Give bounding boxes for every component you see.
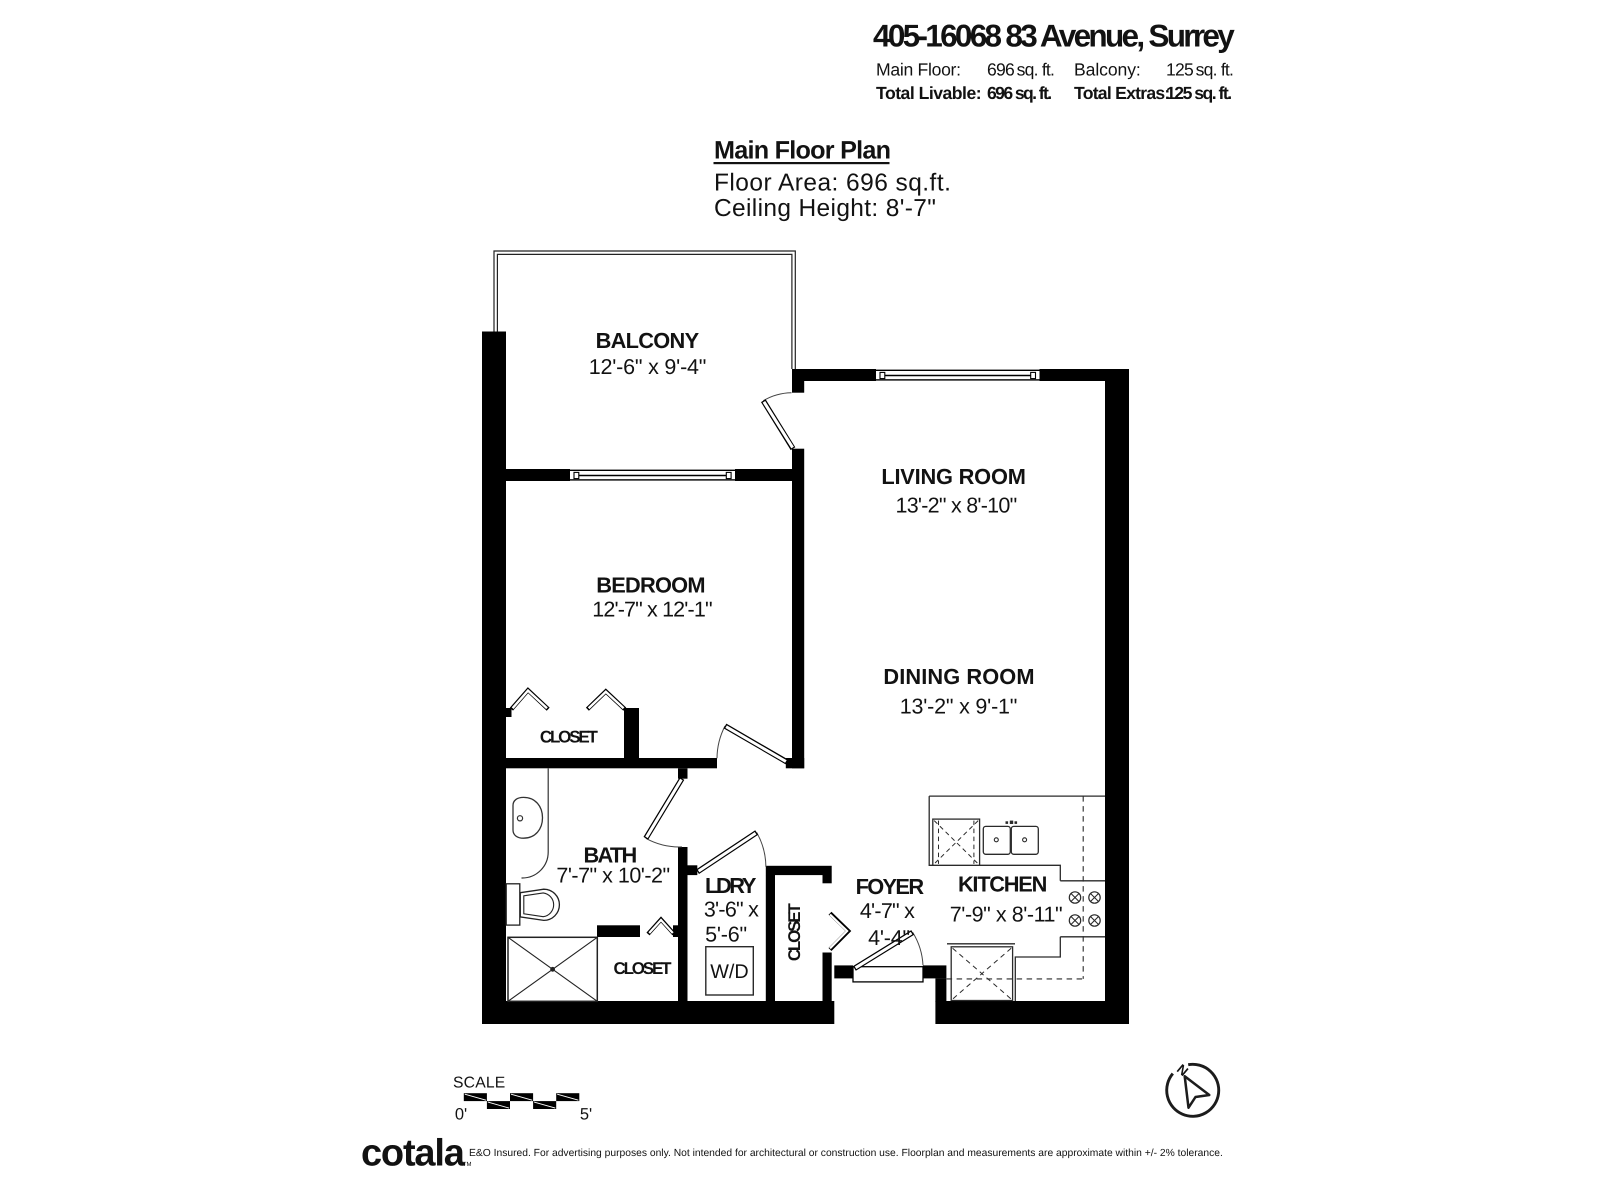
svg-text:BALCONY: BALCONY bbox=[596, 328, 700, 353]
svg-text:CLOSET: CLOSET bbox=[540, 728, 599, 747]
svg-text:5'-6": 5'-6" bbox=[705, 923, 747, 947]
svg-text:SCALE: SCALE bbox=[453, 1074, 505, 1091]
svg-text:CLOSET: CLOSET bbox=[614, 959, 673, 978]
svg-text:0': 0' bbox=[455, 1106, 467, 1124]
svg-text:Main Floor Plan: Main Floor Plan bbox=[714, 137, 890, 165]
svg-text:4'-4": 4'-4" bbox=[868, 926, 910, 950]
svg-text:FOYER: FOYER bbox=[856, 874, 925, 899]
svg-text:Total Extras:: Total Extras: bbox=[1074, 83, 1170, 103]
svg-text:7'-7" x 10'-2": 7'-7" x 10'-2" bbox=[556, 864, 669, 888]
svg-text:Floor Area: 696 sq.ft.: Floor Area: 696 sq.ft. bbox=[714, 170, 951, 197]
svg-text:4'-7" x: 4'-7" x bbox=[860, 899, 915, 923]
svg-text:LDRY: LDRY bbox=[705, 873, 757, 898]
svg-text:13'-2" x 8'-10": 13'-2" x 8'-10" bbox=[896, 494, 1017, 518]
svg-text:13'-2" x 9'-1": 13'-2" x 9'-1" bbox=[900, 695, 1017, 719]
svg-text:cotala: cotala bbox=[361, 1133, 466, 1175]
svg-text:BEDROOM: BEDROOM bbox=[596, 573, 705, 598]
svg-text:W/D: W/D bbox=[710, 961, 748, 983]
svg-text:E&O Insured. For advertising p: E&O Insured. For advertising purposes on… bbox=[469, 1148, 1223, 1159]
svg-text:5': 5' bbox=[580, 1106, 592, 1124]
svg-text:12'-6" x 9'-4": 12'-6" x 9'-4" bbox=[589, 355, 706, 379]
svg-text:LIVING ROOM: LIVING ROOM bbox=[881, 464, 1025, 489]
svg-text:696 sq. ft.: 696 sq. ft. bbox=[987, 83, 1051, 103]
svg-text:Ceiling Height: 8'-7": Ceiling Height: 8'-7" bbox=[714, 195, 936, 222]
svg-text:CLOSET: CLOSET bbox=[785, 903, 804, 962]
svg-text:Main Floor:: Main Floor: bbox=[876, 60, 961, 80]
svg-text:12'-7" x 12'-1": 12'-7" x 12'-1" bbox=[592, 598, 712, 622]
svg-text:7'-9" x 8'-11": 7'-9" x 8'-11" bbox=[950, 903, 1062, 927]
svg-text:125 sq. ft.: 125 sq. ft. bbox=[1166, 83, 1231, 103]
svg-text:125 sq. ft.: 125 sq. ft. bbox=[1166, 60, 1233, 80]
svg-text:KITCHEN: KITCHEN bbox=[958, 872, 1047, 897]
svg-text:3'-6" x: 3'-6" x bbox=[704, 898, 759, 922]
svg-text:Balcony:: Balcony: bbox=[1074, 60, 1141, 80]
svg-text:405-16068 83 Avenue, Surrey: 405-16068 83 Avenue, Surrey bbox=[873, 18, 1235, 54]
svg-text:TM: TM bbox=[463, 1161, 472, 1168]
svg-text:Total Livable:: Total Livable: bbox=[876, 83, 981, 103]
svg-text:696 sq. ft.: 696 sq. ft. bbox=[987, 60, 1054, 80]
svg-text:DINING ROOM: DINING ROOM bbox=[883, 664, 1034, 689]
